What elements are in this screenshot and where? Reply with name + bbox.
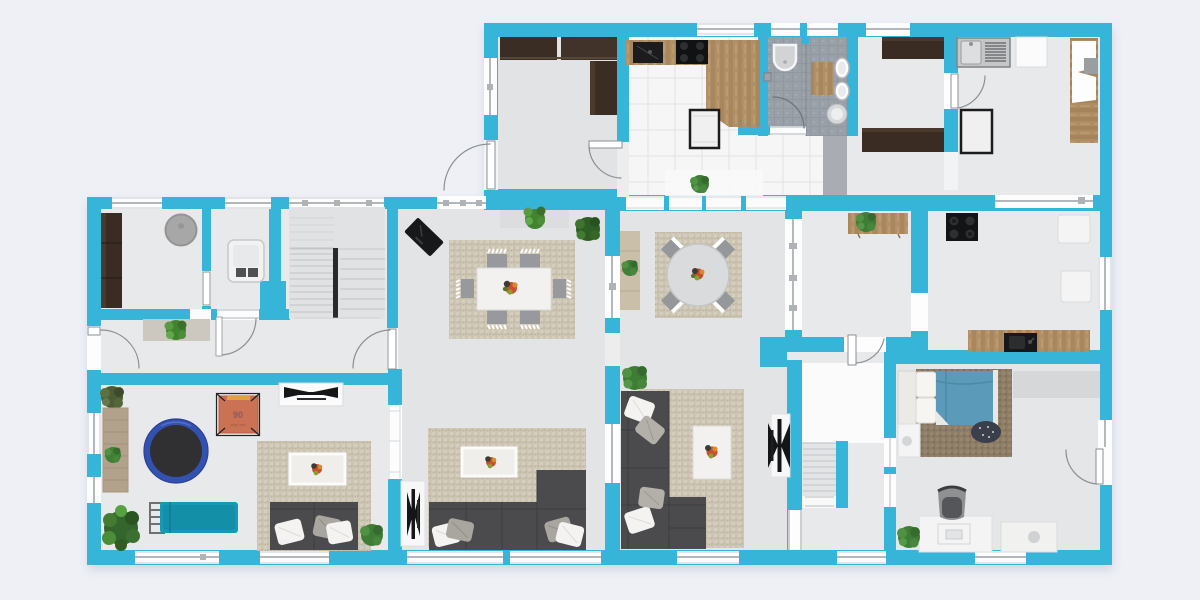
svg-text:play mat: play mat [230, 422, 246, 427]
svg-text:90: 90 [233, 410, 243, 420]
